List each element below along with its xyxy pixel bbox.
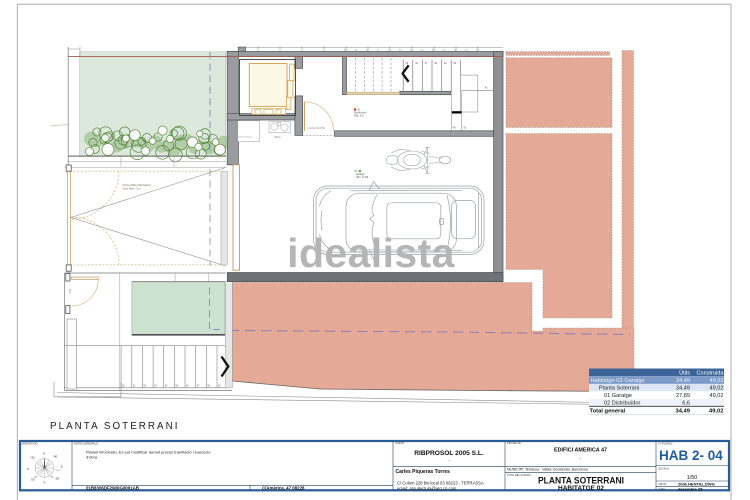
svg-text:HABITATGE 02: HABITATGE 02 [558, 486, 605, 492]
svg-text:02 Distribuïdor: 02 Distribuïdor [604, 401, 641, 407]
svg-text:PLANTA SOTERRANI: PLANTA SOTERRANI [50, 421, 180, 432]
svg-text:Planell informatiu. Es pot mod: Planell informatiu. Es pot modificar dur… [86, 450, 211, 455]
svg-text:ESCALA:: ESCALA: [659, 467, 670, 471]
svg-text:C/Amèrica, 47 08228: C/Amèrica, 47 08228 [262, 486, 305, 491]
svg-text:q.b.escomesa: q.b.escomesa [239, 136, 253, 138]
svg-text:RIBPROSOL 2005 S.L.: RIBPROSOL 2005 S.L. [414, 450, 484, 457]
svg-text:TITOL DEL PLÀNOL:: TITOL DEL PLÀNOL: [507, 473, 532, 477]
svg-text:Llum lliure : 5 m: Llum lliure : 5 m [123, 186, 141, 190]
svg-text:PROJECTE: PROJECTE [507, 441, 521, 445]
svg-text:P-60: P-60 [69, 288, 72, 294]
svg-text:d'obra.: d'obra. [86, 455, 98, 460]
svg-text:Planta Soterrani: Planta Soterrani [599, 386, 639, 392]
svg-text:6,6: 6,6 [682, 401, 690, 407]
svg-text:Habitatge-02-Garatge: Habitatge-02-Garatge [591, 378, 645, 384]
svg-text:desembre 25: desembre 25 [678, 486, 703, 491]
svg-text:1/50: 1/50 [687, 475, 698, 481]
svg-text:49,02: 49,02 [709, 409, 724, 415]
svg-text:BACs: BACs [275, 136, 282, 139]
svg-text:34,49: 34,49 [675, 409, 690, 415]
svg-text:NE: NE [54, 455, 58, 459]
svg-text:E: E [61, 465, 63, 469]
svg-text:Nº PLÀNOL:: Nº PLÀNOL: [659, 442, 674, 446]
svg-text:ARXIU: ARXIU [659, 482, 667, 486]
svg-text:N: N [43, 452, 45, 456]
svg-text:Total general: Total general [590, 409, 626, 415]
svg-text:MUNICIPI: Terrassa - Vallès: MUNICIPI: Terrassa - Vallès Occidental, … [507, 468, 588, 472]
svg-text:CLIENT: CLIENT [395, 441, 405, 445]
svg-text:Útils: 6,6: Útils: 6,6 [354, 115, 364, 118]
svg-text:email: arquitectura@arq.co.com: email: arquitectura@arq.co.com [397, 486, 457, 491]
svg-text:SE: SE [56, 477, 60, 481]
svg-text:Carles Piqueras Torres: Carles Piqueras Torres [396, 469, 451, 475]
svg-text:NOTES GENERALS:: NOTES GENERALS: [74, 442, 99, 446]
svg-text:Útils: 27,89: Útils: 27,89 [356, 176, 369, 179]
svg-text:49,02: 49,02 [710, 393, 724, 399]
svg-text:34,49: 34,49 [676, 386, 690, 392]
svg-text:EDIFICI AMERICA 47: EDIFICI AMERICA 47 [554, 448, 607, 454]
svg-text:01B8306DF2900G0001AB: 01B8306DF2900G0001AB [86, 486, 139, 491]
svg-text:34,49: 34,49 [676, 378, 690, 384]
svg-text:Útils: Útils [679, 369, 690, 376]
svg-text:49,02: 49,02 [710, 386, 724, 392]
svg-text:49,02: 49,02 [710, 378, 724, 384]
svg-text:Construida: Construida [696, 370, 724, 376]
svg-text:idealista: idealista [287, 230, 455, 276]
svg-text:01 Garatge: 01 Garatge [604, 393, 632, 399]
svg-text:J 12.81-CS P-80: J 12.81-CS P-80 [307, 127, 325, 130]
svg-text:27,89: 27,89 [676, 393, 690, 399]
svg-text:PLANTA SOTERRANI: PLANTA SOTERRANI [538, 476, 624, 486]
svg-text:DATA: DATA [659, 487, 666, 491]
svg-text:C/ Colom 228 bis local 03 08: C/ Colom 228 bis local 03 08223 - TERRAS… [397, 481, 484, 486]
svg-text:S: S [44, 481, 46, 485]
svg-text:HAB 2- 04: HAB 2- 04 [659, 448, 723, 463]
